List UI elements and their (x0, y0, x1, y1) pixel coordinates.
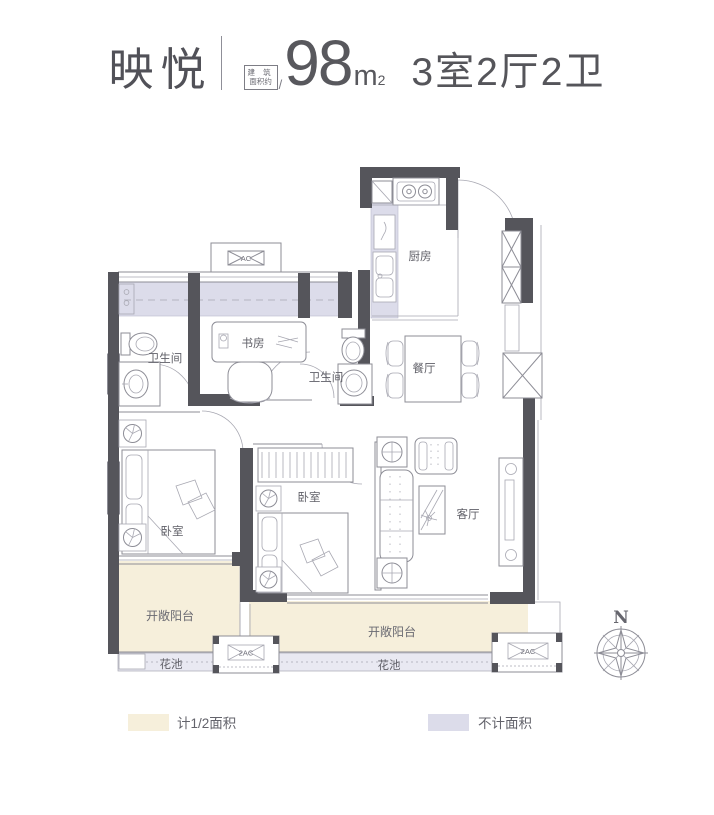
nightstand-icon (256, 567, 281, 592)
ac-unit-left: 2AC (213, 636, 279, 673)
study-label: 书房 (242, 337, 265, 350)
armchair-icon (415, 438, 457, 474)
coffee-table-icon (419, 486, 445, 534)
wardrobe-icon (258, 448, 353, 482)
living-room: 客厅 (377, 437, 523, 588)
bathroom-middle-label: 卫生间 (309, 370, 344, 384)
sofa-icon (380, 470, 413, 562)
bedroom-left-room: 卧室 (119, 420, 215, 554)
desk-chair-icon (228, 362, 272, 403)
bathroom-left-room: 卫生间 (119, 333, 182, 406)
ac-unit-right: 2AC (492, 633, 562, 672)
flower-bed-right-label: 花池 (378, 659, 401, 672)
tv-cabinet-icon (499, 458, 523, 566)
side-table-icon (377, 558, 407, 588)
toilet-icon (342, 329, 365, 363)
balcony-left-label: 开敞阳台 (146, 608, 194, 623)
legend-swatch-half-area (128, 714, 169, 731)
nightstand-icon (119, 420, 146, 447)
nightstand-icon (119, 524, 146, 551)
nightstand-icon (256, 486, 281, 511)
stove-icon (393, 178, 439, 205)
door-arcs (153, 180, 516, 484)
legend-label-excluded-area: 不计面积 (478, 716, 532, 731)
ac-platform-box: AC (211, 243, 281, 272)
bathroom-left-label: 卫生间 (148, 351, 183, 365)
flower-bed-left-label: 花池 (160, 658, 183, 671)
washbasin-icon (338, 364, 372, 404)
bedroom-left-label: 卧室 (161, 524, 184, 538)
bedroom-middle-label: 卧室 (298, 490, 321, 504)
dining-room: 餐厅 (386, 336, 479, 402)
ac-unit-left-label: 2AC (239, 649, 254, 658)
ac-label: AC (241, 254, 252, 263)
bedroom-middle-room: 卧室 (256, 448, 353, 593)
kitchen-label: 厨房 (409, 250, 432, 263)
floorplan-svg: AC 厨房 (0, 0, 714, 815)
compass-icon: N (594, 608, 648, 680)
balcony-right-label: 开敞阳台 (368, 624, 416, 639)
dining-label: 餐厅 (413, 361, 436, 375)
washbasin-icon (119, 362, 160, 406)
toilet-icon (121, 333, 157, 355)
legend: 计1/2面积 不计面积 (128, 714, 532, 731)
kitchen-sink-icon (373, 215, 396, 302)
compass-north-label: N (613, 608, 629, 628)
study-room: 书房 (212, 322, 306, 403)
ac-unit-right-label: 2AC (521, 647, 536, 656)
living-label: 客厅 (457, 507, 480, 521)
kitchen-room: 厨房 (372, 178, 446, 302)
floorplan-page: 映悦 建 筑 面积约 / 98 m 2 3室2厅2卫 (0, 0, 714, 815)
legend-label-half-area: 计1/2面积 (177, 716, 236, 731)
legend-swatch-excluded-area (428, 714, 469, 731)
side-table-icon (377, 437, 407, 467)
